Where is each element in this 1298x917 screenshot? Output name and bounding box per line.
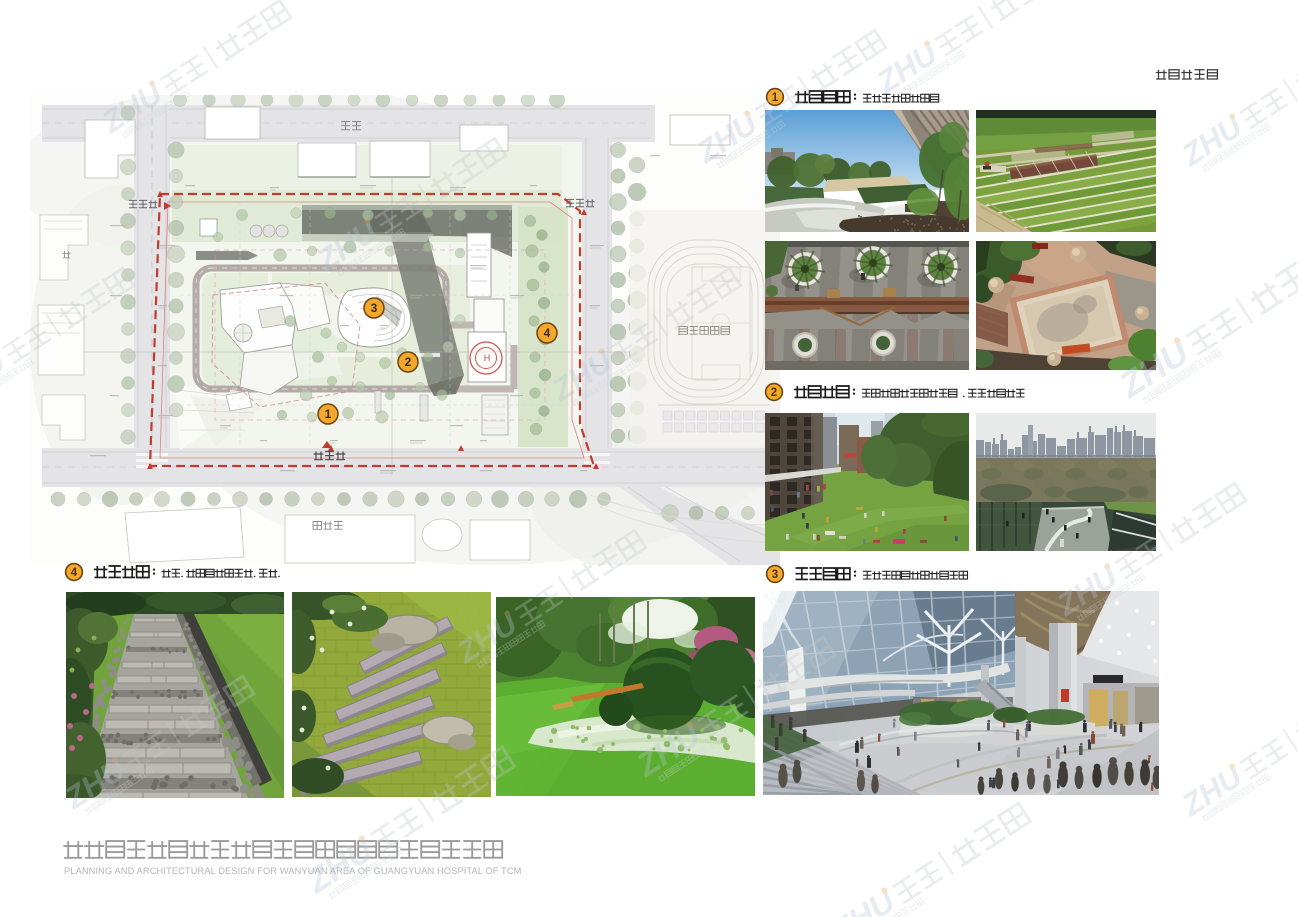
svg-text:4: 4 [544,326,551,340]
svg-text:ZHU: ZHU [1175,108,1250,173]
svg-text:3: 3 [371,301,378,315]
svg-text:4: 4 [71,567,78,579]
svg-text:ZHU: ZHU [825,882,903,917]
svg-text:3: 3 [772,569,778,581]
svg-text:H: H [484,353,491,363]
svg-text:ZHU: ZHU [1175,758,1250,823]
svg-text:1: 1 [325,407,332,421]
svg-text:ZHU: ZHU [0,343,13,408]
svg-text:2: 2 [405,355,412,369]
svg-text:ZHU: ZHU [870,35,945,100]
